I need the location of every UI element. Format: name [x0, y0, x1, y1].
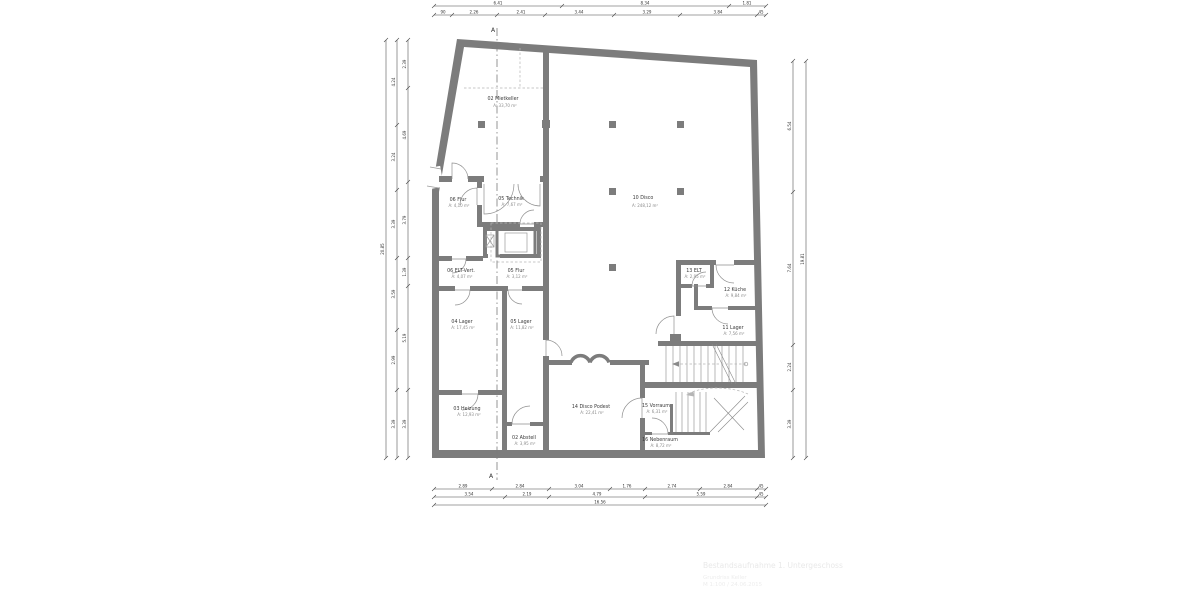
dim-value: 2.99 — [391, 355, 396, 364]
dim-value: 3.39 — [391, 419, 396, 428]
dim-value: 2.41 — [517, 10, 526, 15]
room-area-lager05: A: 11,82 m² — [510, 325, 534, 330]
dim-value: 3.44 — [575, 10, 584, 15]
dim-value: 3.29 — [643, 10, 652, 15]
room-area-flur05: A: 3,12 m² — [507, 274, 528, 279]
dim-value: 3.84 — [714, 10, 723, 15]
room-label-mietkeller: 02 Mietkeller — [487, 96, 518, 102]
dim-value: 1.76 — [623, 483, 632, 488]
room-labels: 02 Mietkeller A: 33,70 m² 06 Flur A: 4,1… — [447, 96, 747, 448]
section-marker-bottom: A — [489, 473, 494, 480]
dim-total-value: 16.56 — [594, 499, 606, 504]
dim-chain-top-1: 6.41 8.34 1.81 — [432, 1, 768, 8]
dim-chain-top-2: 90 2.26 2.41 3.44 3.29 3.84 45 — [432, 10, 768, 17]
dim-chain-right-inner: 6.54 7.64 2.24 3.39 — [787, 59, 795, 460]
watermark-line-1: Bestandsaufnahme 1. Untergeschoss — [703, 561, 843, 570]
dim-value: 8.34 — [641, 1, 650, 6]
dim-value: 2.74 — [668, 483, 677, 488]
dim-value: 2.84 — [724, 483, 733, 488]
dim-total-value: 19.81 — [800, 253, 805, 265]
elevator-car — [505, 233, 527, 252]
dim-chain-bottom-total: 16.56 — [432, 499, 768, 507]
dim-value: 5.19 — [402, 333, 407, 342]
room-area-lager04: A: 17,45 m² — [451, 325, 475, 330]
dim-value: 1.39 — [402, 267, 407, 276]
room-area-flur06: A: 4,10 m² — [449, 203, 470, 208]
room-area-disco-podest: A: 22,41 m² — [580, 410, 604, 415]
dim-value: 6.41 — [494, 1, 503, 6]
dim-value: 4.79 — [593, 491, 602, 496]
dim-value: 45 — [758, 491, 764, 496]
dim-value: 6.54 — [787, 121, 792, 130]
section-marker-top: A — [491, 27, 496, 34]
projection-lines — [464, 48, 543, 88]
dim-chain-left-total: 20.85 — [380, 38, 388, 460]
watermark-line-3: M 1:100 / 24.06.2015 — [703, 582, 763, 588]
room-area-mietkeller: A: 33,70 m² — [493, 103, 517, 108]
dim-value: 2.89 — [459, 483, 468, 488]
dim-total-value: 20.85 — [380, 243, 385, 255]
dim-value: 2.84 — [516, 483, 525, 488]
dim-value: 2.39 — [402, 59, 407, 68]
room-area-elt-vert: A: 4,07 m² — [452, 274, 473, 279]
dim-value: 90 — [440, 10, 446, 15]
dim-value: 45 — [758, 483, 764, 488]
dim-value: 3.39 — [787, 419, 792, 428]
room-label-disco: 10 Disco — [633, 195, 654, 201]
dim-value: 2.24 — [787, 362, 792, 371]
room-area-technik: A: 7,67 m² — [502, 202, 523, 207]
room-area-nebenraum: A: 8,72 m² — [651, 443, 672, 448]
watermark-line-2: Grundriss Keller — [703, 575, 747, 581]
dim-value: 2.19 — [523, 491, 532, 496]
stair-curve-arrow — [686, 392, 694, 397]
room-area-vorraum: A: 6,31 m² — [647, 409, 668, 414]
stairs-lower — [676, 388, 748, 432]
dim-value: 4.24 — [391, 77, 396, 86]
dim-value: 3.39 — [402, 419, 407, 428]
floorplan-drawing: A A 02 Mietkeller A: 33,70 m² 06 Flur A:… — [0, 0, 1200, 600]
dim-value: 1.81 — [743, 1, 752, 6]
dim-value: 45 — [758, 10, 764, 15]
room-area-disco: A: 248,12 m² — [632, 203, 658, 208]
room-area-heizung: A: 12,93 m² — [457, 412, 481, 417]
stairs-upper — [666, 344, 748, 384]
dim-value: 3.54 — [465, 491, 474, 496]
room-area-kueche: A: 9,84 m² — [726, 293, 747, 298]
dim-chain-left-inner: 2.39 4.69 3.79 1.39 5.19 3.39 — [402, 38, 410, 460]
dim-value: 3.04 — [575, 483, 584, 488]
dim-value: 5.59 — [697, 491, 706, 496]
dim-value: 7.64 — [787, 263, 792, 272]
dim-chain-bottom-1: 2.89 2.84 3.04 1.76 2.74 2.84 45 — [432, 483, 768, 491]
room-area-elt13: A: 2,95 m² — [685, 274, 706, 279]
dim-chain-bottom-2: 3.54 2.19 4.79 5.59 45 — [432, 491, 768, 499]
dim-value: 3.79 — [402, 215, 407, 224]
dim-value: 3.24 — [391, 152, 396, 161]
dim-value: 2.26 — [470, 10, 479, 15]
dim-chain-right-total: 19.81 — [800, 59, 808, 460]
room-area-abstell: A: 3,95 m² — [515, 441, 536, 446]
dim-value: 4.69 — [402, 130, 407, 139]
titleblock-watermark: Bestandsaufnahme 1. Untergeschoss Grundr… — [703, 561, 843, 588]
interior-walls — [439, 46, 757, 451]
dim-chain-left-mid: 4.24 3.24 3.39 3.59 2.99 3.39 — [391, 38, 399, 460]
room-area-lager11: A: 7,56 m² — [724, 331, 745, 336]
dim-value: 3.39 — [391, 219, 396, 228]
dim-value: 3.59 — [391, 289, 396, 298]
